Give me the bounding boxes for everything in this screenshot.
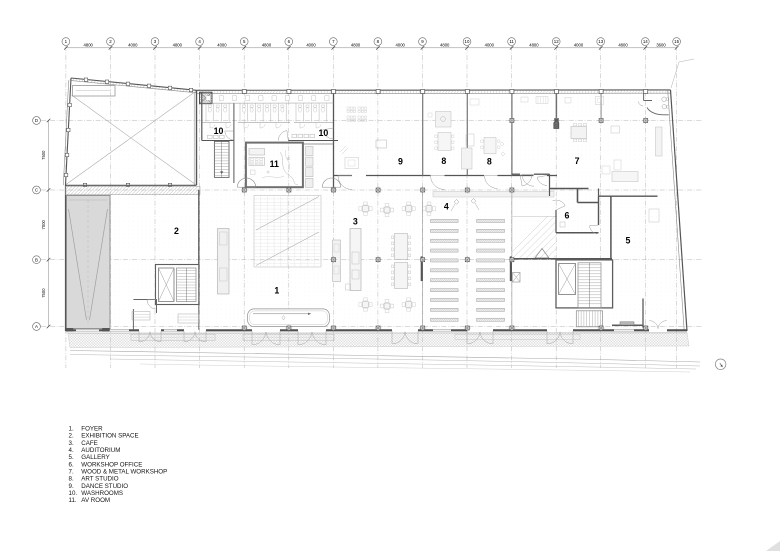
- svg-text:4000: 4000: [217, 42, 227, 47]
- svg-text:4800: 4800: [618, 42, 628, 47]
- svg-text:1: 1: [274, 286, 279, 296]
- svg-text:9.: 9.: [69, 483, 74, 490]
- svg-text:AUDITORIUM: AUDITORIUM: [81, 447, 120, 454]
- svg-text:13: 13: [598, 39, 603, 44]
- svg-text:WOOD & METAL WORKSHOP: WOOD & METAL WORKSHOP: [81, 469, 167, 476]
- svg-text:14: 14: [643, 39, 648, 44]
- svg-text:4800: 4800: [529, 42, 539, 47]
- svg-text:9: 9: [398, 157, 403, 167]
- svg-text:4800: 4800: [440, 42, 450, 47]
- svg-text:B: B: [35, 257, 38, 262]
- svg-text:4000: 4000: [485, 42, 495, 47]
- svg-text:DANCE STUDIO: DANCE STUDIO: [81, 483, 128, 490]
- svg-text:C: C: [35, 188, 38, 193]
- svg-text:11: 11: [270, 159, 279, 169]
- svg-text:6.: 6.: [69, 461, 74, 468]
- svg-text:3.: 3.: [69, 440, 74, 447]
- svg-text:3: 3: [353, 216, 358, 226]
- svg-text:WASHROOMS: WASHROOMS: [81, 490, 123, 497]
- svg-text:4000: 4000: [306, 42, 316, 47]
- svg-text:7.: 7.: [69, 469, 74, 476]
- svg-text:4800: 4800: [262, 42, 272, 47]
- svg-text:CAFE: CAFE: [81, 440, 98, 447]
- svg-text:10: 10: [214, 126, 224, 136]
- svg-text:7500: 7500: [41, 288, 46, 298]
- svg-text:4800: 4800: [173, 42, 183, 47]
- svg-text:GALLERY: GALLERY: [81, 454, 109, 461]
- svg-text:EXHIBITION SPACE: EXHIBITION SPACE: [81, 433, 138, 440]
- svg-text:D: D: [35, 118, 38, 123]
- svg-text:5.: 5.: [69, 454, 74, 461]
- svg-text:11: 11: [509, 39, 514, 44]
- svg-text:6: 6: [565, 210, 570, 220]
- svg-text:2: 2: [174, 226, 179, 236]
- svg-text:15: 15: [674, 39, 679, 44]
- svg-text:ART STUDIO: ART STUDIO: [81, 476, 118, 483]
- svg-text:10.: 10.: [69, 490, 78, 497]
- svg-text:1.: 1.: [69, 426, 74, 433]
- svg-text:2.: 2.: [69, 433, 74, 440]
- svg-text:4.: 4.: [69, 447, 74, 454]
- svg-text:3600: 3600: [656, 42, 666, 47]
- svg-text:4000: 4000: [128, 42, 138, 47]
- svg-text:10: 10: [319, 128, 329, 138]
- svg-text:FOYER: FOYER: [81, 426, 103, 433]
- svg-text:A: A: [35, 324, 38, 329]
- svg-text:11.: 11.: [69, 497, 77, 504]
- svg-text:4000: 4000: [396, 42, 406, 47]
- svg-text:4800: 4800: [351, 42, 361, 47]
- svg-text:7: 7: [575, 156, 580, 166]
- svg-text:7000: 7000: [41, 219, 46, 229]
- svg-text:WORKSHOP OFFICE: WORKSHOP OFFICE: [81, 461, 142, 468]
- svg-text:8: 8: [441, 156, 446, 166]
- svg-text:4: 4: [444, 202, 449, 212]
- svg-text:10: 10: [465, 39, 470, 44]
- svg-text:8: 8: [487, 156, 492, 166]
- svg-text:4000: 4000: [574, 42, 584, 47]
- svg-text:8.: 8.: [69, 476, 74, 483]
- svg-text:7500: 7500: [41, 150, 46, 160]
- svg-text:5: 5: [626, 236, 631, 246]
- svg-text:AV ROOM: AV ROOM: [81, 497, 110, 504]
- svg-text:4800: 4800: [84, 42, 94, 47]
- svg-text:12: 12: [554, 39, 559, 44]
